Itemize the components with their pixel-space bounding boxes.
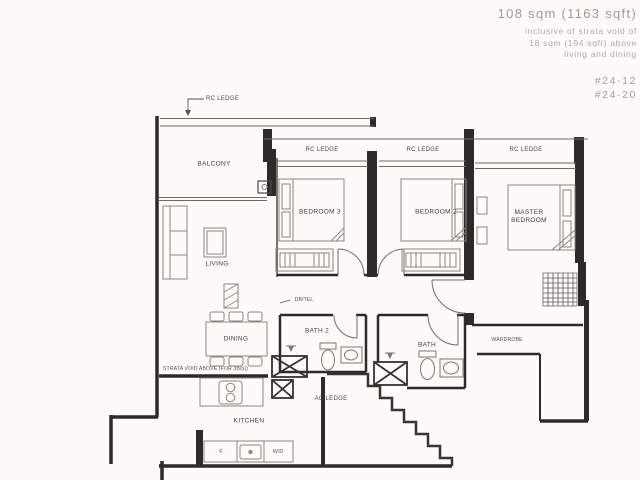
shower-bath [385,353,395,359]
unit-number-1: #24-12 [498,74,637,89]
room-label-dining: DINING [224,336,249,343]
floorplan-canvas: 108 sqm (1163 sqft) inclusive of strata … [0,0,640,480]
strata-void-note-line2: 18 sqm (194 sqft) above [498,38,637,50]
sink-bath [440,359,463,377]
rc-ledge-label-bed3: RC LEDGE [305,147,338,153]
room-label-bath: BATH [418,342,436,349]
toilet-bath [419,351,436,380]
room-label-kitchen: KITCHEN [234,418,265,425]
washer-dryer-label: W/D [273,449,283,455]
rc-ledge-label-master: RC LEDGE [509,147,542,153]
wardrobe-label: WARDROBE [491,337,522,343]
strata-void-plan-note: STRATA VOID ABOVE (FOR 3B(s)) [163,366,248,372]
room-label-balcony: BALCONY [197,161,230,168]
room-label-living: LIVING [205,261,228,268]
rc-ledge-label-balcony: RC LEDGE [206,96,239,102]
room-label-bedroom2: BEDROOM 2 [415,209,457,216]
shower-bath2 [286,346,296,352]
room-label-bath2: BATH 2 [305,328,329,335]
coffee-table [204,228,226,257]
unit-area: 108 sqm (1163 sqft) [498,6,637,21]
room-label-master-bedroom: MASTER BEDROOM [511,209,547,225]
header-block: 108 sqm (1163 sqft) inclusive of strata … [498,6,637,103]
strata-void-note-line3: living and dining [498,49,637,61]
rc-ledge-label-bed2: RC LEDGE [406,147,439,153]
toilet-bath2 [320,343,336,370]
room-label-bedroom3: BEDROOM 3 [299,209,341,216]
wardrobe-bedroom3 [276,249,333,271]
strata-void-note-line1: inclusive of strata void of [498,26,637,38]
fridge-label: F [219,449,222,455]
ac-ledge-label: AC LEDGE [315,396,348,402]
sofa [163,206,187,279]
tv-console [224,284,238,308]
duct-shafts [272,356,407,398]
outer-walls [111,116,588,480]
wardrobe-bedroom2 [402,249,460,271]
sink-bath2 [341,347,362,363]
wardrobe-master [543,273,577,306]
unit-number-2: #24-20 [498,88,637,103]
db-label: DB/TEL [295,297,314,303]
wall-posts [196,117,586,466]
